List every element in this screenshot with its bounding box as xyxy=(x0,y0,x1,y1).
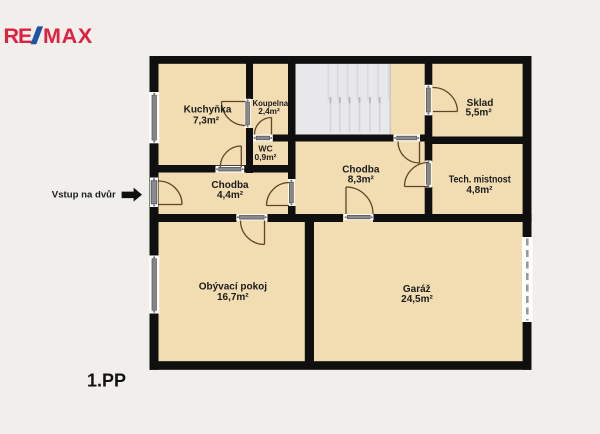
svg-text:Obývací pokoj: Obývací pokoj xyxy=(199,282,268,293)
svg-text:4,8m²: 4,8m² xyxy=(466,185,493,196)
svg-text:1.PP: 1.PP xyxy=(87,371,126,391)
svg-text:8,3m²: 8,3m² xyxy=(348,175,375,186)
svg-text:Kuchyňka: Kuchyňka xyxy=(184,105,232,116)
svg-text:4,4m²: 4,4m² xyxy=(217,190,244,201)
svg-text:MAX: MAX xyxy=(43,24,93,48)
svg-text:2,4m²: 2,4m² xyxy=(258,107,280,116)
svg-text:7,3m²: 7,3m² xyxy=(193,116,220,127)
svg-text:16,7m²: 16,7m² xyxy=(217,292,249,303)
svg-text:24,5m²: 24,5m² xyxy=(401,294,433,305)
svg-text:Vstup na dvůr: Vstup na dvůr xyxy=(52,190,116,201)
svg-text:Garáž: Garáž xyxy=(403,284,431,295)
svg-text:Tech. mistnost: Tech. mistnost xyxy=(449,174,512,185)
svg-text:0,9m²: 0,9m² xyxy=(255,152,277,162)
svg-text:RE: RE xyxy=(4,24,33,48)
svg-text:5,5m²: 5,5m² xyxy=(466,108,493,119)
